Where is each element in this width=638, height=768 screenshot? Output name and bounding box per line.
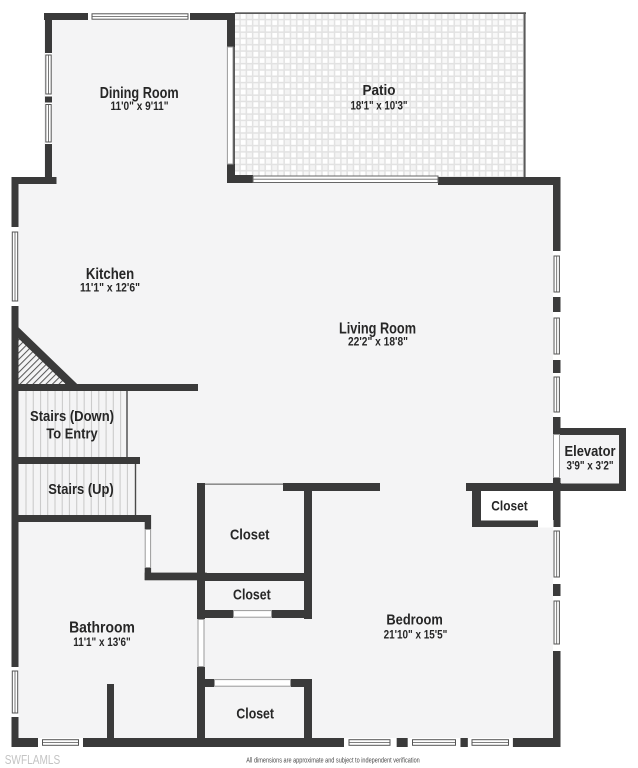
svg-text:22'2" x 18'8": 22'2" x 18'8": [348, 334, 408, 348]
svg-text:Stairs (Down): Stairs (Down): [30, 409, 114, 425]
svg-text:11'1" x 12'6": 11'1" x 12'6": [80, 281, 140, 295]
svg-text:Closet: Closet: [230, 526, 270, 543]
svg-text:Closet: Closet: [233, 588, 271, 604]
svg-text:All dimensions are approximate: All dimensions are approximate and subje…: [246, 757, 420, 764]
svg-text:21'10" x 15'5": 21'10" x 15'5": [384, 627, 448, 641]
svg-text:Patio: Patio: [363, 83, 396, 99]
svg-text:11'1" x 13'6": 11'1" x 13'6": [73, 635, 131, 649]
svg-text:To Entry: To Entry: [46, 427, 97, 443]
svg-text:SWFLAMLS: SWFLAMLS: [5, 753, 60, 767]
svg-text:Elevator: Elevator: [565, 444, 616, 460]
svg-text:11'0" x 9'11": 11'0" x 9'11": [111, 99, 169, 113]
svg-text:18'1" x 10'3": 18'1" x 10'3": [351, 99, 408, 113]
svg-text:Stairs (Up): Stairs (Up): [48, 482, 114, 498]
svg-text:3'9" x 3'2": 3'9" x 3'2": [567, 461, 614, 473]
svg-text:Closet: Closet: [236, 705, 274, 722]
svg-text:Bedroom: Bedroom: [386, 612, 442, 629]
svg-text:Closet: Closet: [491, 498, 528, 514]
